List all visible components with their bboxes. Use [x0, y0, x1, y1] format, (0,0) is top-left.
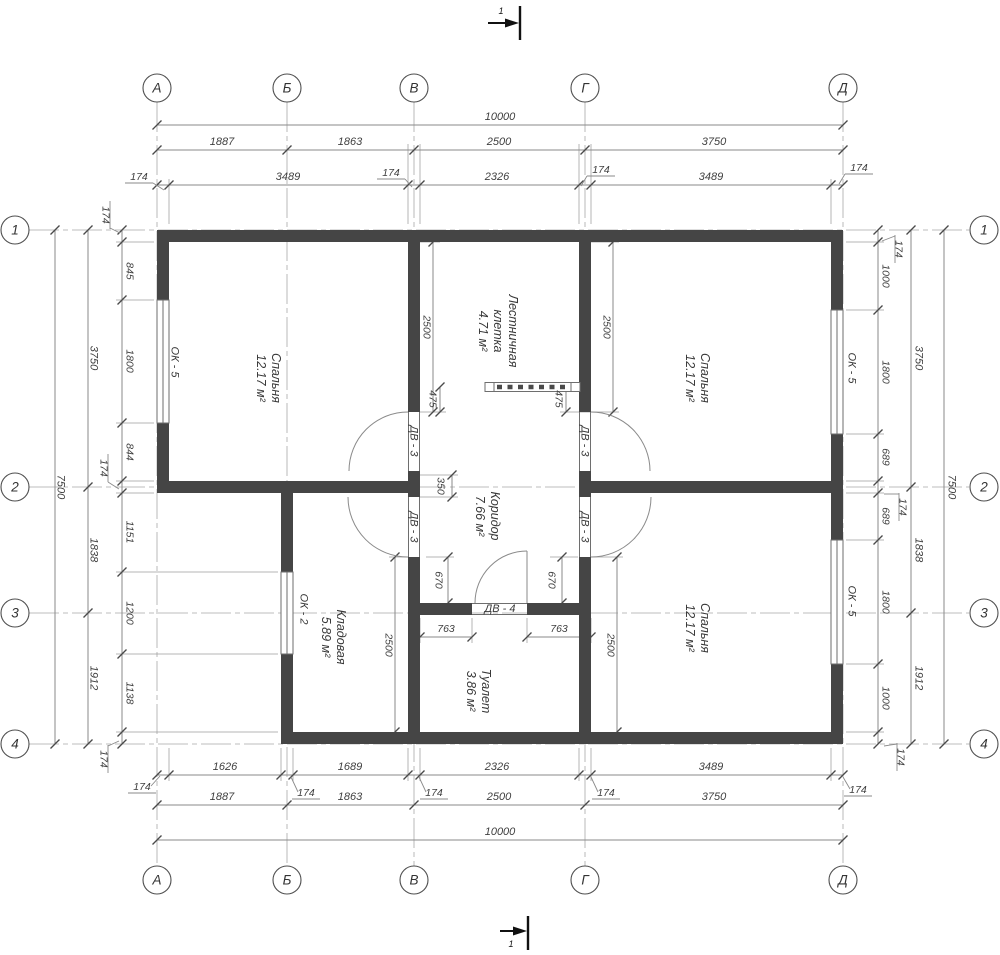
dim-label: 763: [437, 623, 455, 635]
dims-right: 7500 3750 1838 1912 1000 1800 689 689 18…: [880, 235, 958, 771]
axis-bubble-label: Д: [836, 81, 848, 96]
axis-bubble-label: В: [409, 81, 418, 96]
wall-axis2-right: [579, 481, 843, 493]
dim-label: 1912: [88, 666, 100, 690]
dim-label: 689: [880, 448, 892, 466]
dim-label: 350: [435, 477, 447, 495]
dim-label: 2500: [421, 314, 433, 339]
dim-label: 1800: [124, 349, 136, 373]
door-tag: ДВ - 3: [408, 424, 420, 458]
door-swing-arc: [591, 497, 651, 557]
dim-label: 1863: [338, 136, 363, 148]
dim-label: 845: [124, 262, 136, 280]
room-area: 4.71 м²: [476, 311, 490, 352]
dim-wall-leader: 174: [100, 201, 121, 233]
dim-label: 1200: [124, 601, 136, 625]
dim-label: 1689: [338, 761, 362, 773]
dim-wall-leader: 174: [884, 743, 907, 771]
dim-label: 174: [130, 171, 148, 183]
dim-label: 174: [425, 787, 443, 799]
axis-bubble-label: 3: [11, 606, 19, 621]
room-label-bedroom-top-right: Спальня 12.17 м²: [683, 353, 712, 403]
axis-bubble-label: Д: [836, 873, 848, 888]
dim-label: 2500: [601, 314, 613, 339]
dim-wall-leader: 174: [98, 454, 120, 489]
dim-label: 174: [849, 784, 867, 796]
wall-storage-west: [281, 654, 293, 732]
room-area: 7.66 м²: [473, 496, 487, 537]
dim-label: 1151: [124, 521, 136, 544]
dim-label: 1912: [913, 666, 925, 690]
dim-label: 844: [124, 443, 136, 461]
window-tag: ОК - 2: [298, 594, 310, 625]
room-label-bedroom-left: Спальня 12.17 м²: [254, 353, 283, 403]
dim-wall-leader: 174: [128, 776, 160, 793]
door-swing-arc: [349, 412, 408, 471]
dim-label: 3750: [702, 136, 727, 148]
section-marker-bottom: 1: [500, 916, 528, 950]
room-name: Лестничная: [506, 294, 520, 368]
dim-label: 1000: [880, 264, 892, 288]
dim-label: 174: [133, 781, 151, 793]
room-name: Туалет: [479, 669, 493, 714]
dim-wall-leader: 174: [591, 777, 620, 799]
wall-south: [281, 732, 843, 744]
dim-wall-leader: 174: [377, 167, 412, 187]
dim-label: 174: [893, 240, 905, 258]
dim-label: 689: [880, 507, 892, 525]
dim-label: 1887: [210, 791, 235, 803]
stair-symbol: [485, 383, 580, 392]
dim-label: 670: [433, 571, 445, 589]
room-name: Коридор: [488, 491, 502, 540]
dim-wall-leader: 174: [125, 171, 164, 190]
dim-label: 3750: [913, 346, 925, 371]
door-tag: ДВ - 3: [408, 510, 420, 544]
axis-bubble-label: 1: [980, 223, 988, 238]
wall-axis-v: [408, 471, 420, 497]
dim-label: 1863: [338, 791, 363, 803]
wall-axis-g: [579, 557, 591, 732]
axis-bubble-label: 4: [11, 737, 19, 752]
section-marker-top: 1: [488, 6, 520, 40]
dim-label: 3489: [276, 171, 300, 183]
axis-bubble-label: А: [151, 81, 161, 96]
wall-storage-west: [281, 493, 293, 572]
dim-label: 174: [895, 748, 907, 766]
dim-label: 3750: [88, 346, 100, 371]
door-tag: ДВ - 3: [579, 424, 591, 458]
room-name: клетка: [491, 309, 505, 352]
floor-plan-drawing: 1 1 А Б В Г Д А Б В Г Д 1 2 3 4 1 2 3 4 …: [0, 0, 1000, 955]
window-tag: ОК - 5: [846, 353, 858, 385]
room-name: Кладовая: [334, 609, 348, 664]
dim-wall-leader: 174: [419, 777, 448, 799]
dims-bottom: 1626 1689 2326 3489 1887 1863 2500 3750 …: [128, 761, 872, 838]
dim-label: 3489: [699, 761, 723, 773]
dim-label: 174: [897, 498, 909, 516]
door-tag: ДВ - 3: [579, 510, 591, 544]
dim-label: 1800: [880, 590, 892, 614]
dim-label: 174: [850, 162, 868, 174]
dim-label: 174: [297, 787, 315, 799]
wall-east: [831, 664, 843, 732]
room-area: 12.17 м²: [683, 354, 697, 402]
dim-label: 1138: [124, 682, 136, 705]
axis-bubble-label: 1: [11, 223, 19, 238]
wall-east: [831, 242, 843, 310]
wall-axis2-left: [157, 481, 420, 493]
room-label-corridor: Коридор 7.66 м²: [473, 491, 502, 540]
dim-label: 10000: [485, 111, 516, 123]
dim-label: 1887: [210, 136, 235, 148]
dim-label: 174: [592, 164, 610, 176]
dim-label: 670: [546, 571, 558, 589]
axis-bubble-label: 2: [979, 480, 988, 495]
room-area: 3.86 м²: [464, 671, 478, 712]
window-tag: ОК - 5: [846, 586, 858, 618]
axis-bubble-label: 4: [980, 737, 988, 752]
axis-bubble-label: А: [151, 873, 161, 888]
dim-label: 1838: [913, 538, 925, 563]
dim-label: 7500: [55, 475, 67, 500]
room-label-toilet: Туалет 3.86 м²: [464, 669, 493, 714]
room-name: Спальня: [698, 603, 712, 653]
axis-bubble-label: В: [409, 873, 418, 888]
dim-label: 2500: [486, 136, 512, 148]
dim-label: 2500: [383, 632, 395, 657]
dim-label: 475: [553, 390, 565, 408]
section-label: 1: [498, 6, 503, 16]
dim-wall-leader: 174: [581, 164, 615, 186]
room-name: Спальня: [269, 353, 283, 403]
walls: [157, 230, 843, 744]
dim-label: 7500: [946, 475, 958, 500]
door-swing-arc: [348, 497, 408, 557]
dim-label: 174: [597, 787, 615, 799]
dim-label: 2326: [484, 761, 510, 773]
wall-axis-v: [408, 557, 420, 732]
dim-label: 2326: [484, 171, 510, 183]
dim-label: 1838: [88, 538, 100, 563]
dim-wall-leader: 174: [839, 162, 873, 184]
wall-toilet: [408, 603, 472, 615]
dim-label: 1000: [880, 686, 892, 710]
dim-wall-leader: 174: [98, 741, 120, 773]
axis-bubble-label: Б: [283, 873, 292, 888]
room-area: 5.89 м²: [319, 617, 333, 658]
dim-label: 2500: [486, 791, 512, 803]
axis-bubble-label: 3: [980, 606, 988, 621]
dim-label: 1800: [880, 360, 892, 384]
dim-wall-leader: 174: [843, 777, 872, 796]
wall-toilet: [527, 603, 591, 615]
room-label-staircase: Лестничная клетка 4.71 м²: [476, 294, 520, 368]
room-area: 12.17 м²: [683, 604, 697, 652]
room-area: 12.17 м²: [254, 354, 268, 402]
room-name: Спальня: [698, 353, 712, 403]
dim-label: 1626: [213, 761, 238, 773]
dim-label: 3750: [702, 791, 727, 803]
wall-axis-v: [408, 242, 420, 412]
room-label-storage: Кладовая 5.89 м²: [319, 609, 348, 664]
door-tag: ДВ - 4: [483, 603, 516, 615]
window-tag: ОК - 5: [169, 347, 181, 379]
wall-axis-g: [579, 242, 591, 412]
door-swing-arc: [475, 551, 527, 603]
axis-bubble-label: 2: [10, 480, 19, 495]
wall-west: [157, 242, 169, 300]
dim-label: 2500: [605, 632, 617, 657]
axis-bubble-label: Б: [283, 81, 292, 96]
dim-label: 174: [382, 167, 400, 179]
room-label-bedroom-bottom-right: Спальня 12.17 м²: [683, 603, 712, 653]
dim-label: 763: [550, 623, 568, 635]
dim-label: 3489: [699, 171, 723, 183]
wall-north: [157, 230, 843, 242]
dim-wall-leader: 174: [291, 777, 320, 799]
dim-label: 475: [427, 390, 439, 408]
dim-wall-leader: 174: [882, 235, 905, 263]
door-swing-arc: [591, 412, 650, 471]
section-label: 1: [508, 939, 513, 949]
dim-label: 10000: [485, 826, 516, 838]
floor-plan-canvas: 1 1 А Б В Г Д А Б В Г Д 1 2 3 4 1 2 3 4 …: [0, 0, 1000, 955]
